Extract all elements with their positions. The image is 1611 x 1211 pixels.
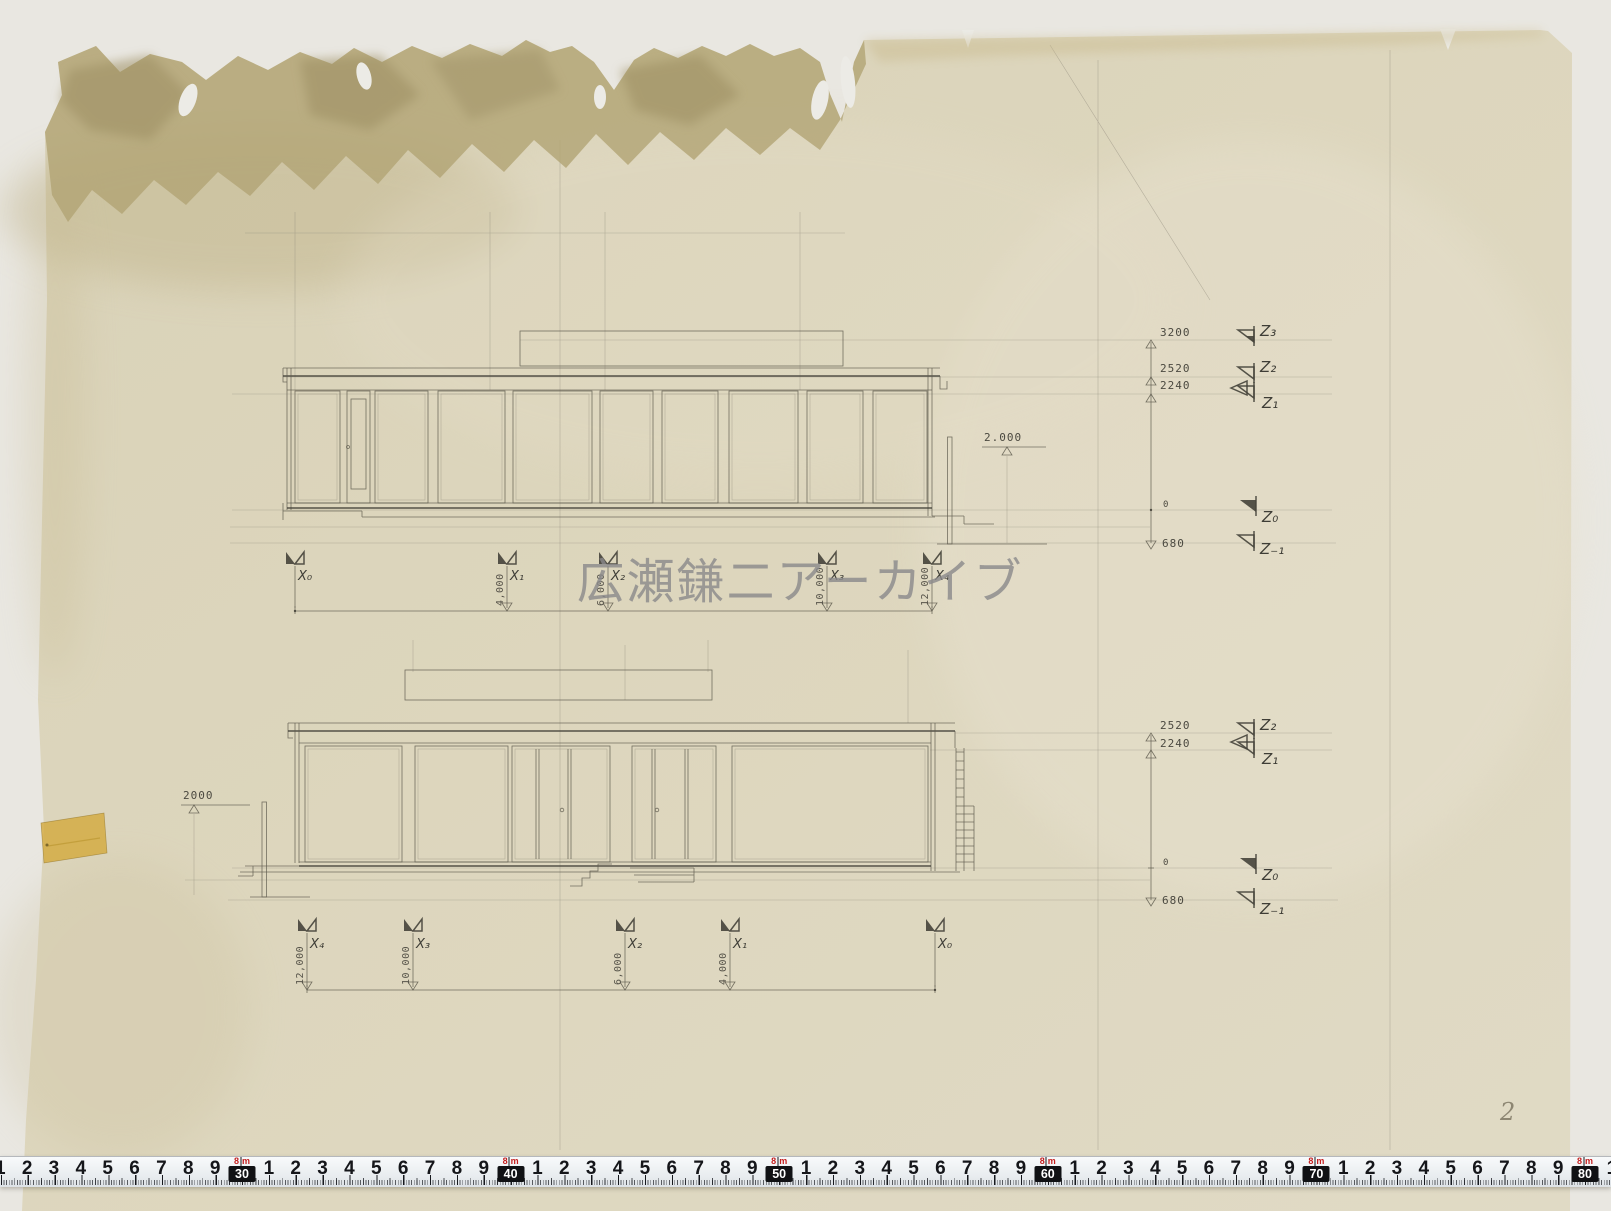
ruler-decade: 8m60 xyxy=(1034,1157,1061,1182)
ruler-digit: 2 xyxy=(22,1158,33,1180)
ruler-digit: 9 xyxy=(1284,1158,1295,1180)
ruler-decade: 8m70 xyxy=(1303,1157,1330,1182)
ruler-digit: 7 xyxy=(693,1158,704,1180)
z-mark-z0: Z₀ xyxy=(1261,866,1278,884)
ruler-meter-mark: 8m xyxy=(1308,1157,1324,1166)
ruler-digit: 3 xyxy=(586,1158,597,1180)
svg-text:X₁: X₁ xyxy=(509,569,524,584)
z-mark-z3: Z₃ xyxy=(1259,322,1276,340)
ruler-decade: 8m50 xyxy=(766,1157,793,1182)
ruler-digit: 4 xyxy=(1150,1158,1161,1180)
ruler-decade-box: 50 xyxy=(766,1166,793,1182)
page-number: 2 xyxy=(1499,1098,1515,1126)
ruler-digit: 1 xyxy=(1338,1158,1349,1180)
ruler-meter-mark: 8m xyxy=(771,1157,787,1166)
ruler-digit: 5 xyxy=(371,1158,382,1180)
ruler-decade-box: 30 xyxy=(229,1166,256,1182)
ruler-digit: 9 xyxy=(747,1158,758,1180)
ruler-digit: 2 xyxy=(828,1158,839,1180)
wall-height-label: 2.000 xyxy=(984,431,1022,444)
ruler-digit: 6 xyxy=(935,1158,946,1180)
ruler-decade-box: 40 xyxy=(497,1166,524,1182)
ruler-digit: 2 xyxy=(1365,1158,1376,1180)
ruler-digit: 9 xyxy=(210,1158,221,1180)
svg-text:X₃: X₃ xyxy=(415,937,430,952)
archive-watermark: 広瀬鎌二アーカイブ xyxy=(576,556,1023,609)
svg-text:X₀: X₀ xyxy=(937,937,953,952)
svg-text:4,000: 4,000 xyxy=(495,573,506,606)
z-mark-zm1: Z₋₁ xyxy=(1259,540,1284,558)
level-label-3200: 3200 xyxy=(1160,326,1191,339)
level-label-2520: 2520 xyxy=(1160,719,1191,732)
svg-text:4,000: 4,000 xyxy=(718,952,729,985)
ruler-digit: 8 xyxy=(183,1158,194,1180)
z-mark-z1: Z₁ xyxy=(1261,394,1278,412)
level-label-680: 680 xyxy=(1162,894,1185,907)
ruler-digit: 1 xyxy=(0,1158,6,1180)
ruler-digit: 6 xyxy=(1204,1158,1215,1180)
ruler-digit: 4 xyxy=(344,1158,355,1180)
ruler-digit: 4 xyxy=(881,1158,892,1180)
ruler-digit: 3 xyxy=(49,1158,60,1180)
ruler-digit: 5 xyxy=(1177,1158,1188,1180)
ruler-digit: 3 xyxy=(1123,1158,1134,1180)
svg-text:12,000: 12,000 xyxy=(295,946,306,985)
ruler-meter-mark: 8m xyxy=(1577,1157,1593,1166)
level-label-2240: 2240 xyxy=(1160,379,1191,392)
ruler-digit: 2 xyxy=(1096,1158,1107,1180)
ruler-digit: 3 xyxy=(317,1158,328,1180)
ruler-meter-mark: 8m xyxy=(1040,1157,1056,1166)
ruler-decade-box: 70 xyxy=(1303,1166,1330,1182)
ruler-digit: 6 xyxy=(129,1158,140,1180)
svg-text:6,000: 6,000 xyxy=(613,952,624,985)
ruler-meter-mark: 8m xyxy=(234,1157,250,1166)
ruler-decade: 8m40 xyxy=(497,1157,524,1182)
wall-height-label: 2000 xyxy=(183,789,214,802)
svg-text:X₀: X₀ xyxy=(297,569,313,584)
ruler-digit: 2 xyxy=(290,1158,301,1180)
ruler-digit: 8 xyxy=(452,1158,463,1180)
ruler-digit: 2 xyxy=(559,1158,570,1180)
ruler-digit: 5 xyxy=(640,1158,651,1180)
ruler-digit: 1 xyxy=(532,1158,543,1180)
level-label-0: 0 xyxy=(1163,858,1169,868)
level-label-0: 0 xyxy=(1163,500,1169,510)
ruler-digit: 1 xyxy=(1607,1158,1611,1180)
svg-text:X₂: X₂ xyxy=(627,937,642,952)
ruler-digit: 9 xyxy=(1553,1158,1564,1180)
ruler-decade: 8m80 xyxy=(1572,1157,1599,1182)
drawing-scan: 2.000 3200 2520 2240 0 680 Z₃ Z₂ xyxy=(0,0,1611,1211)
z-mark-z0: Z₀ xyxy=(1261,508,1278,526)
ruler-digit: 4 xyxy=(76,1158,87,1180)
ruler-digit: 9 xyxy=(478,1158,489,1180)
ruler-digit: 4 xyxy=(613,1158,624,1180)
ruler-digit: 6 xyxy=(666,1158,677,1180)
ruler-digit: 6 xyxy=(398,1158,409,1180)
ruler-decade-box: 60 xyxy=(1034,1166,1061,1182)
ruler-digit: 8 xyxy=(989,1158,1000,1180)
ruler-digit: 7 xyxy=(962,1158,973,1180)
ruler-digit: 7 xyxy=(425,1158,436,1180)
svg-text:X₄: X₄ xyxy=(309,937,325,952)
ruler-digit: 9 xyxy=(1016,1158,1027,1180)
ruler-digit: 1 xyxy=(801,1158,812,1180)
ruler-digit: 4 xyxy=(1419,1158,1430,1180)
ruler-digit: 5 xyxy=(908,1158,919,1180)
level-label-680: 680 xyxy=(1162,537,1185,550)
ruler-meter-mark: 8m xyxy=(503,1157,519,1166)
measuring-tape: 1234567898m301234567898m401234567898m501… xyxy=(0,1156,1611,1187)
ruler-digit: 1 xyxy=(264,1158,275,1180)
ruler-digit: 7 xyxy=(156,1158,167,1180)
ruler-digit: 7 xyxy=(1231,1158,1242,1180)
ruler-digit: 3 xyxy=(854,1158,865,1180)
level-label-2240: 2240 xyxy=(1160,737,1191,750)
z-mark-zm1: Z₋₁ xyxy=(1259,900,1284,918)
paper-sheet xyxy=(0,30,1580,1211)
ruler-digit: 6 xyxy=(1472,1158,1483,1180)
ruler-digit: 1 xyxy=(1069,1158,1080,1180)
z-mark-z1: Z₁ xyxy=(1261,750,1278,768)
ruler-digit: 8 xyxy=(1257,1158,1268,1180)
ruler-digit: 5 xyxy=(102,1158,113,1180)
ruler-digit: 5 xyxy=(1445,1158,1456,1180)
z-mark-z2: Z₂ xyxy=(1259,716,1276,734)
scanned-drawing-page: 2.000 3200 2520 2240 0 680 Z₃ Z₂ xyxy=(0,0,1611,1211)
ruler-digit: 8 xyxy=(1526,1158,1537,1180)
level-label-2520: 2520 xyxy=(1160,362,1191,375)
z-mark-z2: Z₂ xyxy=(1259,358,1276,376)
svg-text:10,000: 10,000 xyxy=(401,946,412,985)
ruler-digit: 8 xyxy=(720,1158,731,1180)
svg-text:X₁: X₁ xyxy=(732,937,747,952)
ruler-decade-box: 80 xyxy=(1572,1166,1599,1182)
ruler-digit: 7 xyxy=(1499,1158,1510,1180)
ruler-digit: 3 xyxy=(1392,1158,1403,1180)
ruler-decade: 8m30 xyxy=(229,1157,256,1182)
